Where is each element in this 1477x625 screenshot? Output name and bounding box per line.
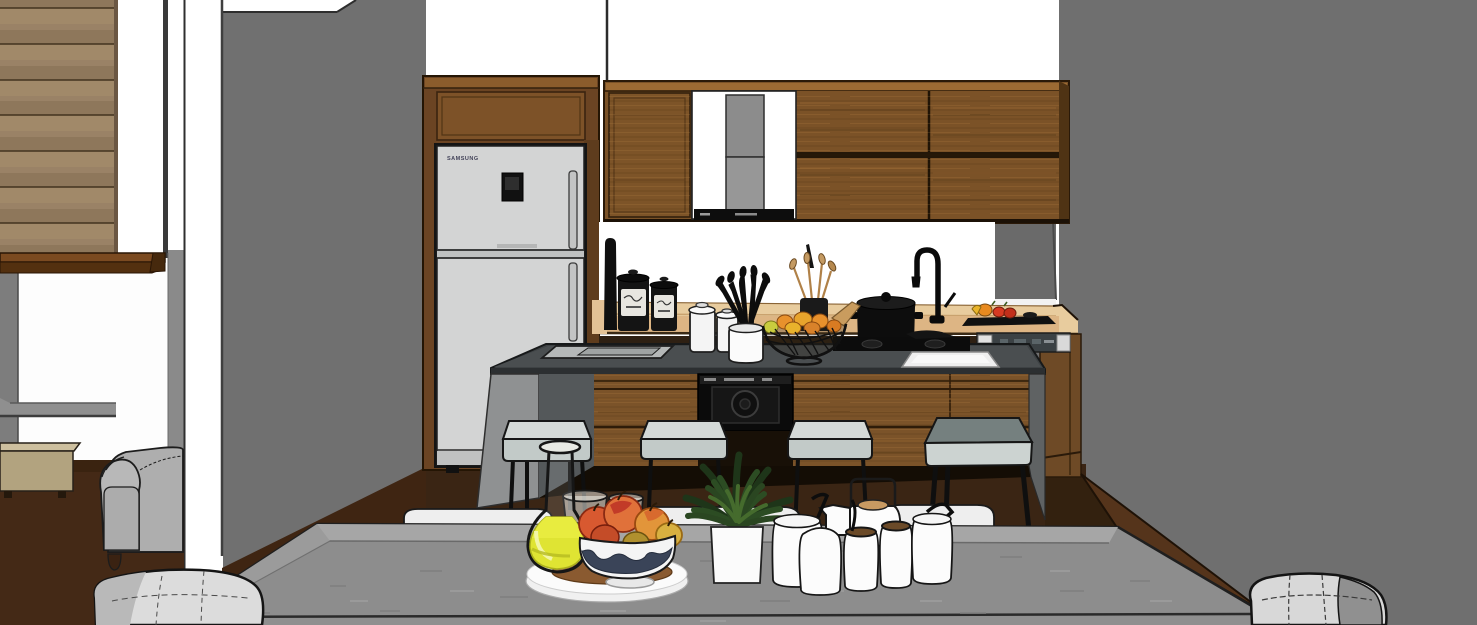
svg-text:SAMSUNG: SAMSUNG — [447, 156, 479, 162]
